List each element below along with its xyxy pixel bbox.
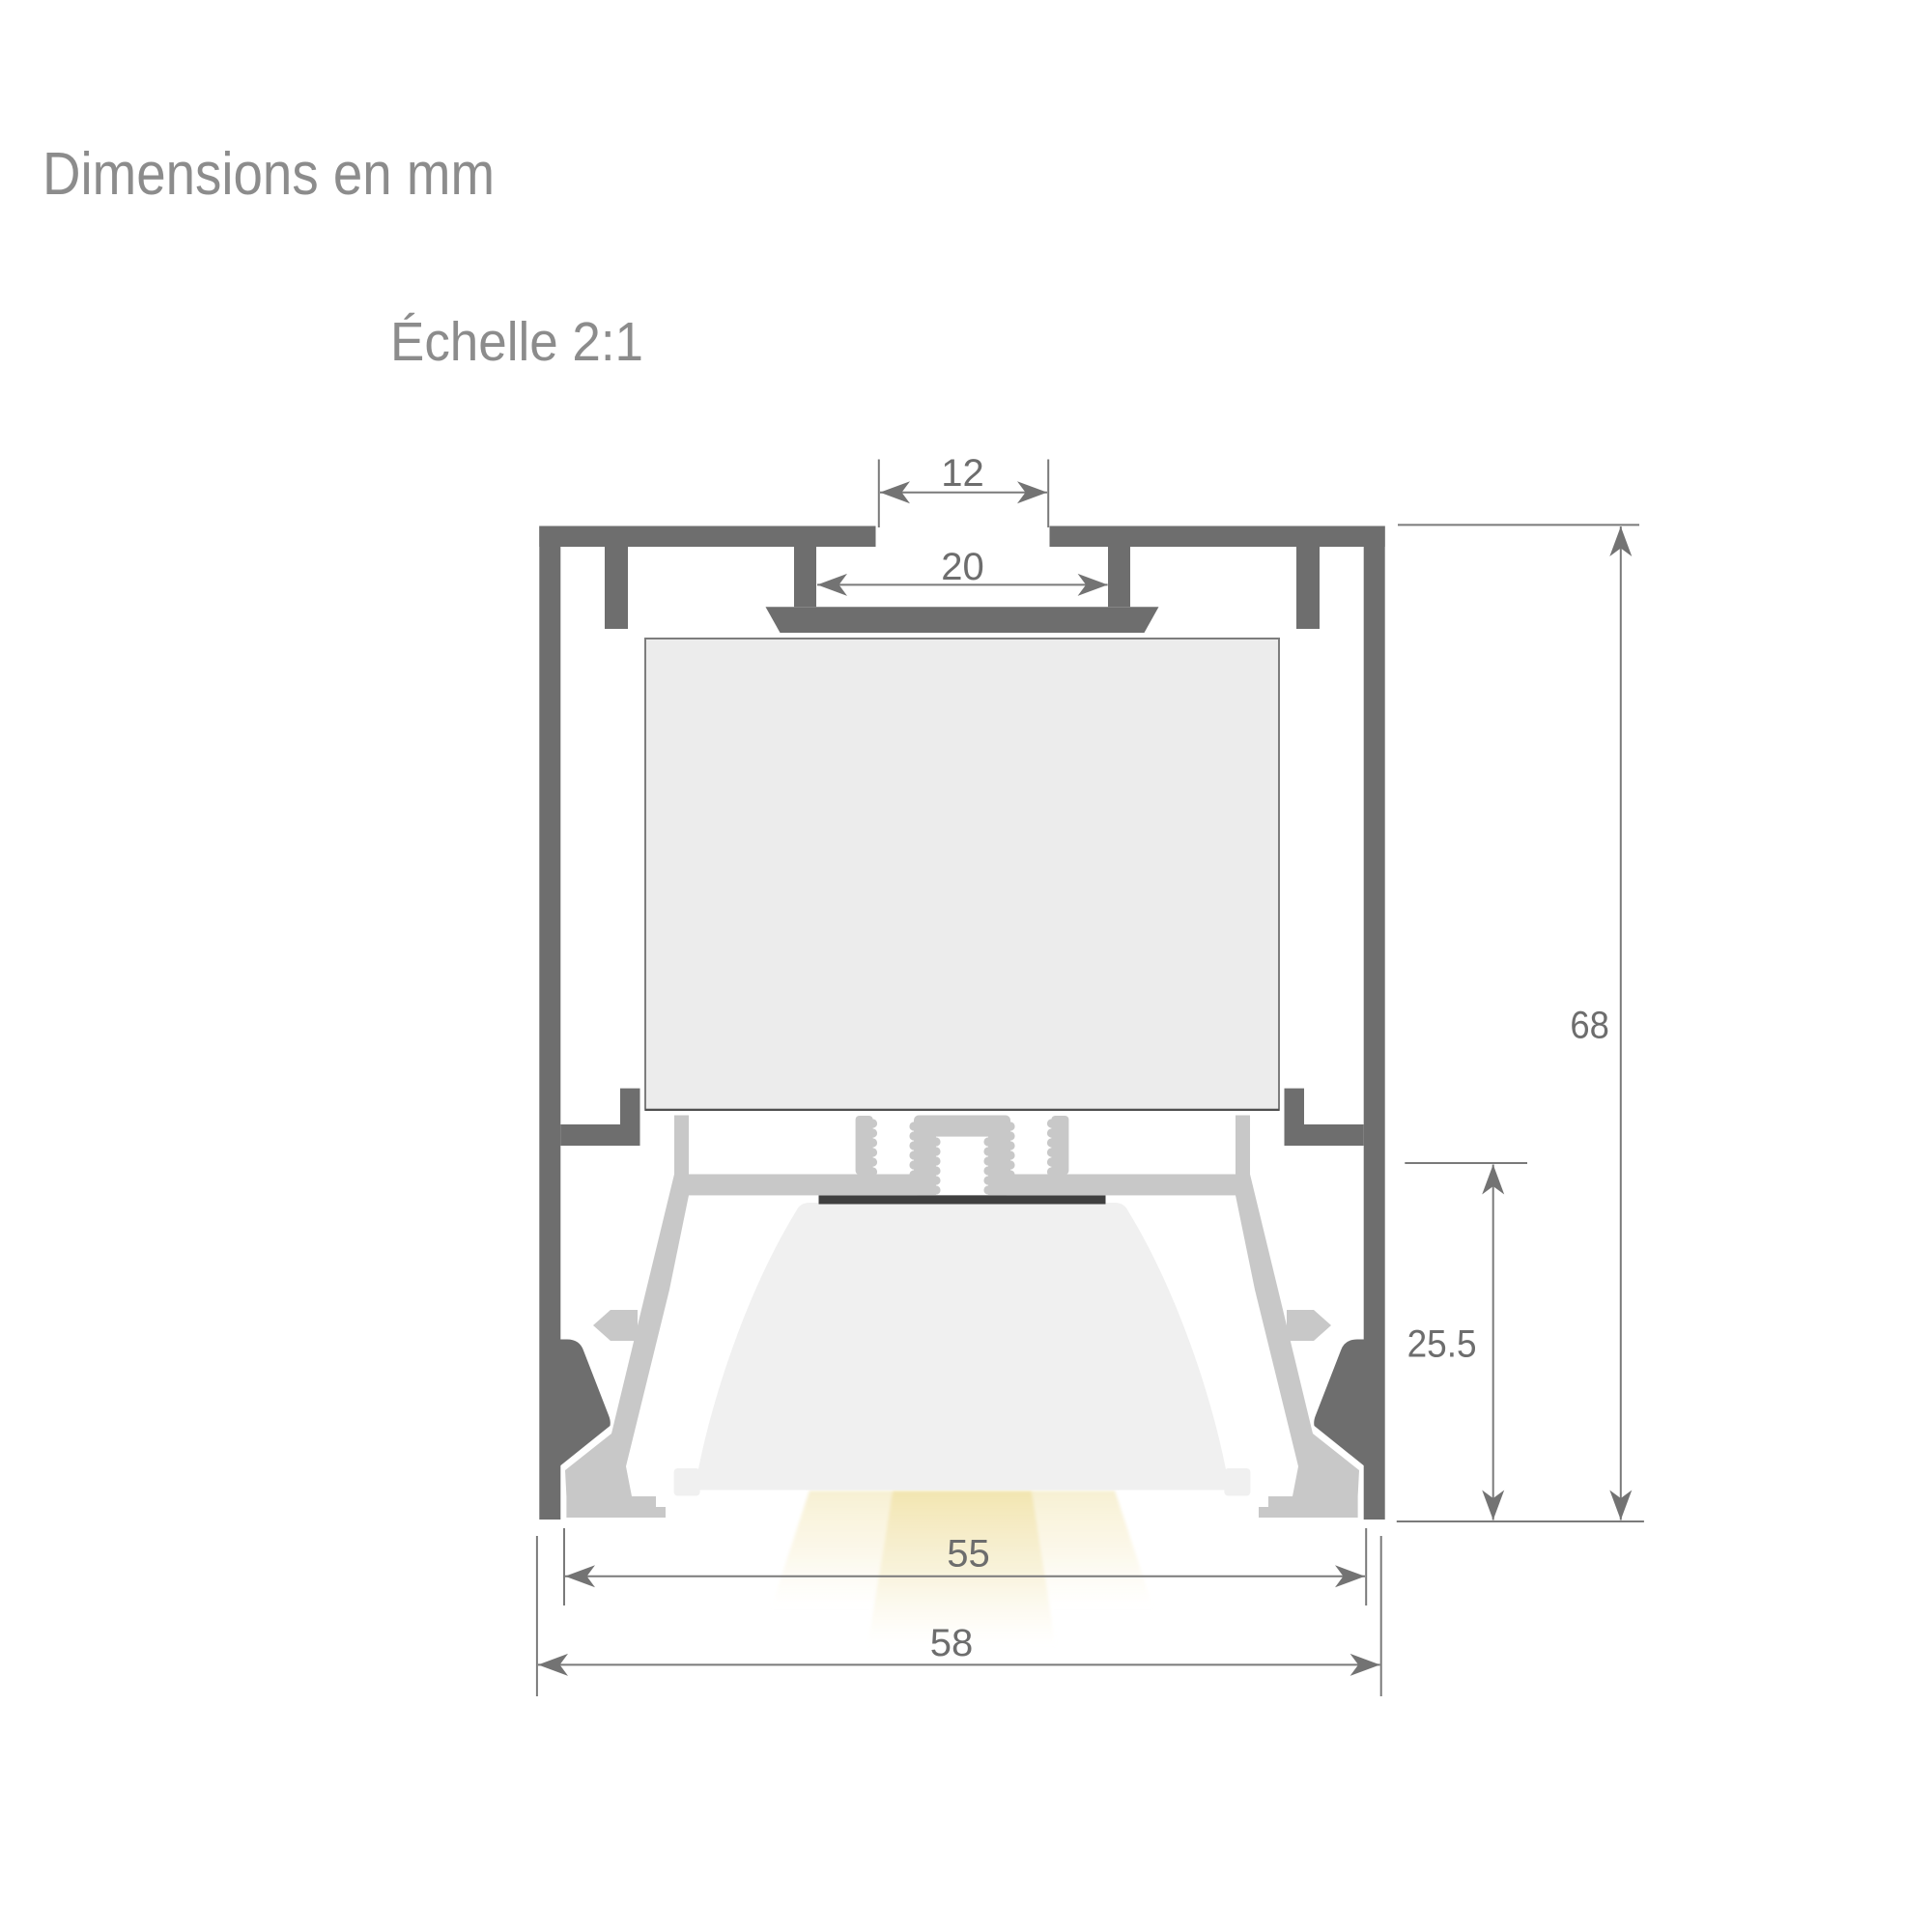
svg-text:58: 58 xyxy=(930,1622,974,1664)
svg-text:Échelle 2:1: Échelle 2:1 xyxy=(390,311,643,373)
svg-text:25.5: 25.5 xyxy=(1407,1322,1477,1365)
svg-text:12: 12 xyxy=(941,452,984,495)
svg-text:Dimensions en mm: Dimensions en mm xyxy=(43,141,495,208)
svg-text:68: 68 xyxy=(1570,1005,1609,1047)
svg-text:20: 20 xyxy=(941,546,984,588)
svg-text:55: 55 xyxy=(947,1532,990,1575)
